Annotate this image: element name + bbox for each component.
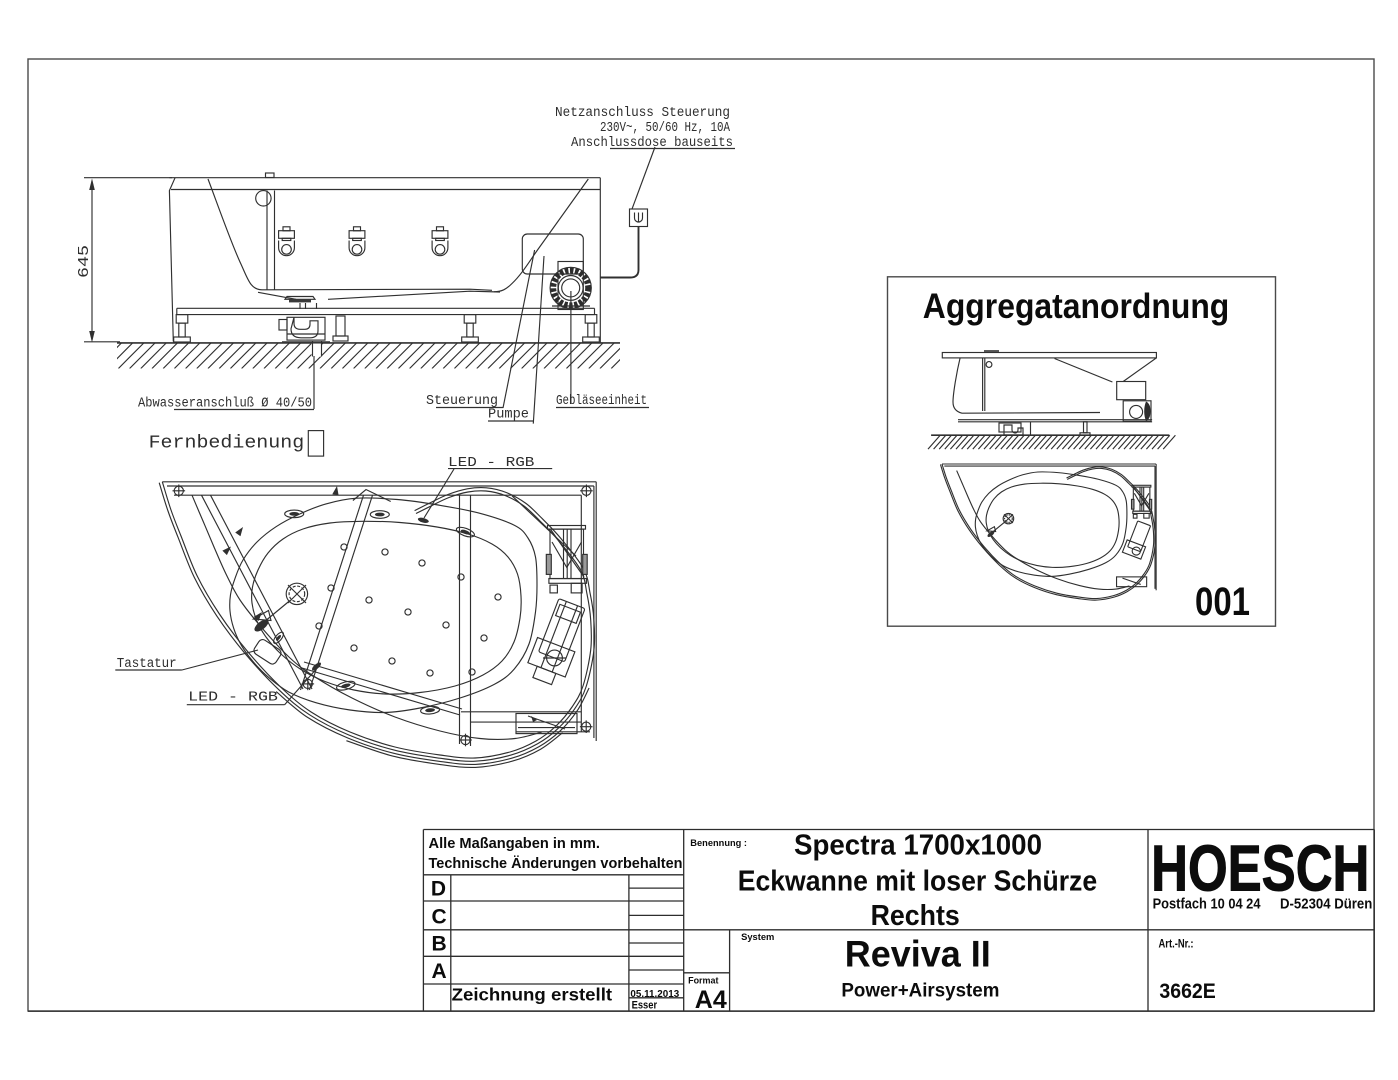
svg-text:Rechts: Rechts [871, 900, 960, 932]
svg-text:HOESCH: HOESCH [1151, 832, 1369, 905]
svg-text:Zeichnung erstellt: Zeichnung erstellt [452, 985, 613, 1005]
svg-text:Netzanschluss Steuerung: Netzanschluss Steuerung [555, 106, 730, 121]
svg-text:Eckwanne mit loser Schürze: Eckwanne mit loser Schürze [738, 866, 1097, 898]
svg-text:B: B [432, 933, 447, 956]
svg-text:Gebläseeinheit: Gebläseeinheit [556, 394, 647, 409]
svg-text:C: C [432, 906, 447, 929]
svg-text:Alle Maßangaben in mm.: Alle Maßangaben in mm. [429, 835, 601, 852]
svg-text:645: 645 [76, 245, 93, 278]
svg-text:Fernbedienung: Fernbedienung [149, 434, 305, 454]
svg-text:A: A [432, 960, 447, 983]
svg-text:001: 001 [1195, 580, 1250, 624]
svg-text:Reviva II: Reviva II [845, 934, 991, 975]
svg-text:230V~, 50/60 Hz, 10A: 230V~, 50/60 Hz, 10A [600, 121, 731, 136]
svg-text:Benennung :: Benennung : [690, 838, 747, 849]
svg-text:Power+Airsystem: Power+Airsystem [841, 981, 999, 1002]
svg-text:Technische Änderungen vorbehal: Technische Änderungen vorbehalten [429, 855, 683, 872]
svg-text:05.11.2013: 05.11.2013 [630, 989, 679, 1000]
svg-text:Art.-Nr.:: Art.-Nr.: [1159, 936, 1194, 950]
svg-text:Postfach 10 04 24: Postfach 10 04 24 [1153, 897, 1261, 913]
svg-text:System: System [741, 932, 774, 943]
svg-text:A4: A4 [695, 986, 727, 1014]
svg-text:D-52304 Düren: D-52304 Düren [1280, 897, 1372, 913]
svg-text:Esser: Esser [632, 1000, 658, 1012]
svg-text:Aggregatanordnung: Aggregatanordnung [923, 286, 1230, 326]
svg-text:D: D [431, 877, 446, 900]
svg-text:Pumpe: Pumpe [488, 408, 529, 423]
svg-text:Spectra 1700x1000: Spectra 1700x1000 [794, 830, 1042, 862]
svg-text:3662E: 3662E [1159, 980, 1215, 1003]
svg-text:LED - RGB: LED - RGB [188, 691, 278, 706]
